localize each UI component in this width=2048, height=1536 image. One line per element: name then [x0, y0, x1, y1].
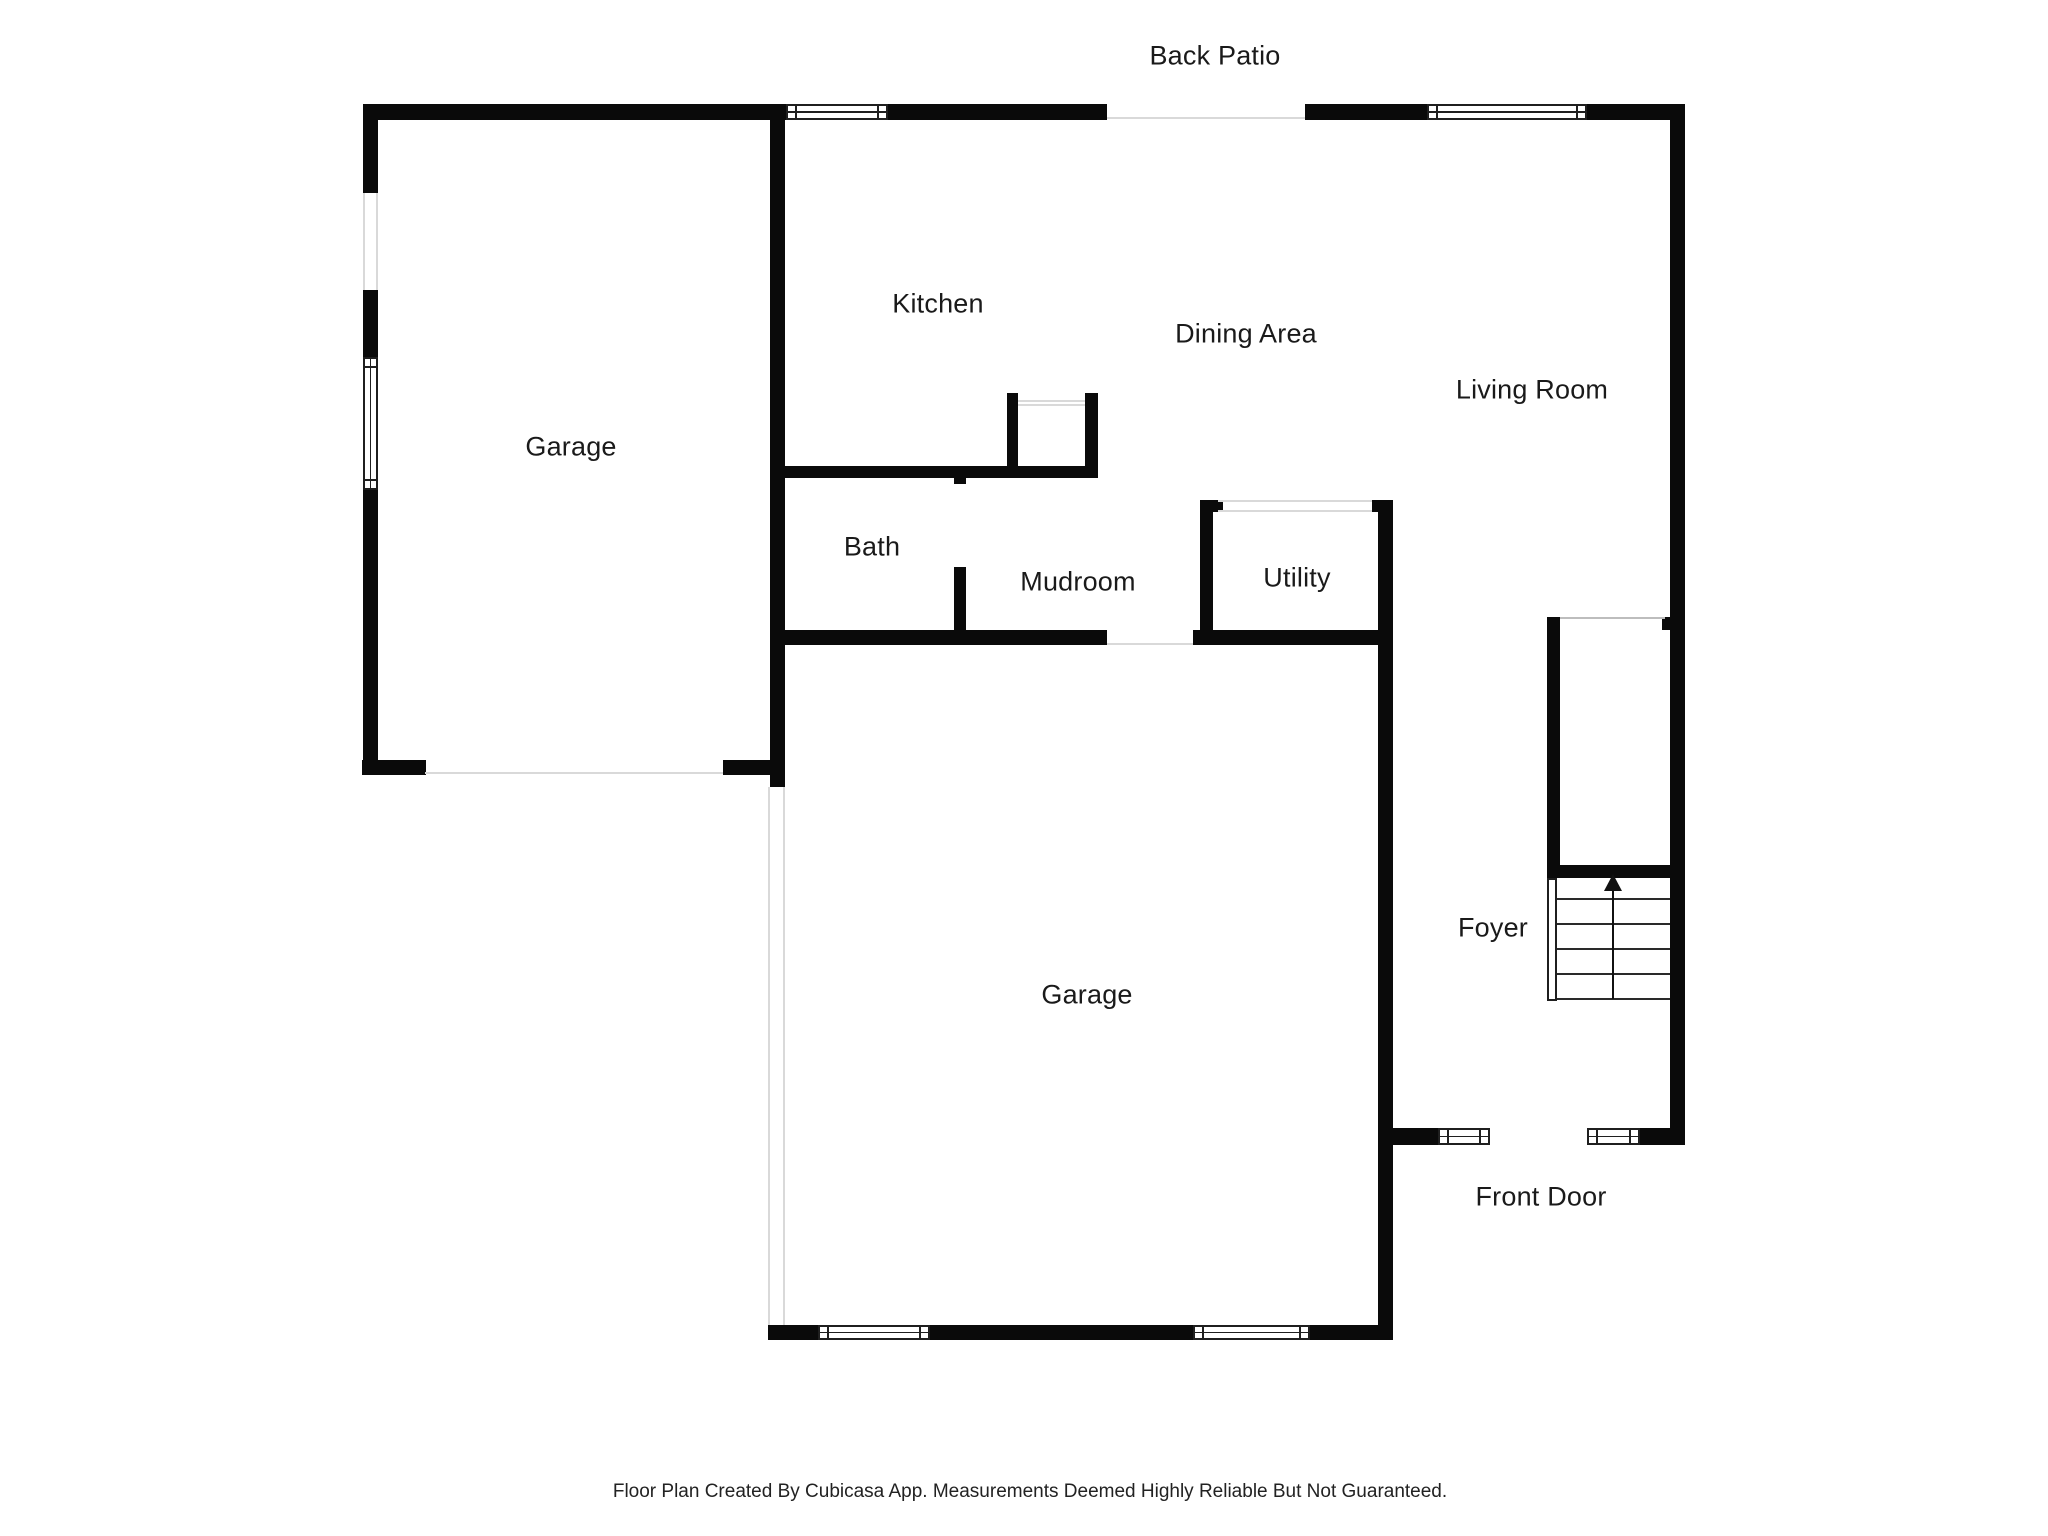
stairwell-top-line — [1560, 617, 1665, 619]
frontdoor-window-right — [1587, 1128, 1640, 1145]
wall-bath-right — [954, 567, 966, 630]
label-mudroom: Mudroom — [1020, 567, 1135, 598]
garage-door-window-right — [1193, 1325, 1310, 1340]
wall-garage1-bottom-left — [362, 760, 426, 775]
stairs-up-arrow-icon — [1604, 874, 1622, 891]
stair-railing — [1547, 878, 1557, 1001]
wall-pantry-left — [1007, 393, 1018, 468]
kitchen-window — [786, 104, 888, 120]
wall-top-garage — [363, 104, 786, 120]
wall-center-vertical — [770, 104, 785, 787]
wall-utility-left — [1200, 500, 1213, 630]
garage-side-window — [363, 357, 378, 490]
label-kitchen: Kitchen — [892, 289, 983, 320]
wall-mudroom-bottom — [770, 630, 1107, 645]
garage2-left-edge-a — [768, 787, 770, 1325]
mudroom-garage-door-line — [1107, 643, 1193, 645]
left-gap-edge-a — [363, 193, 365, 290]
label-garage-bottom: Garage — [1041, 980, 1132, 1011]
label-front-door: Front Door — [1475, 1182, 1606, 1213]
wall-garage2-right — [1378, 500, 1393, 1340]
stairs-direction-line — [1612, 890, 1614, 999]
label-bath: Bath — [844, 532, 900, 563]
wall-bath-door-stub — [954, 478, 966, 484]
back-patio-opening-line — [1107, 117, 1305, 119]
pantry-opening-line-b — [1018, 404, 1085, 406]
wall-garage2-bottom-b — [930, 1325, 1193, 1340]
garage-door-window-left — [818, 1325, 930, 1340]
label-living-room: Living Room — [1456, 375, 1608, 406]
wall-left-upper — [363, 104, 378, 193]
wall-right-exterior — [1670, 104, 1685, 1145]
garage1-opening-line — [425, 772, 723, 774]
wall-garage2-bottom-a — [768, 1325, 818, 1340]
wall-left-lower — [363, 490, 378, 775]
label-foyer: Foyer — [1458, 913, 1528, 944]
wall-stairwell-left — [1547, 617, 1560, 878]
left-gap-edge-b — [376, 193, 378, 290]
wall-top-patio-right — [1305, 104, 1427, 120]
garage2-left-edge-b — [783, 787, 785, 1325]
wall-left-middle — [363, 290, 378, 357]
wall-pantry-right — [1085, 393, 1098, 468]
wall-utility-bottom — [1193, 630, 1393, 645]
utility-opening-line-a — [1218, 500, 1372, 502]
label-utility: Utility — [1263, 563, 1330, 594]
utility-opening-line-b — [1218, 510, 1372, 512]
wall-garage2-bottom-c — [1310, 1325, 1393, 1340]
living-room-window — [1427, 104, 1587, 120]
label-back-patio: Back Patio — [1149, 41, 1280, 72]
pantry-opening-line-a — [1018, 400, 1085, 402]
frontdoor-window-left — [1438, 1128, 1490, 1145]
wall-top-kitchen-right — [888, 104, 1107, 120]
footer-disclaimer: Floor Plan Created By Cubicasa App. Meas… — [613, 1481, 1447, 1503]
floor-plan: Back Patio Garage Kitchen Dining Area Li… — [0, 0, 2048, 1536]
label-garage-top: Garage — [525, 432, 616, 463]
wall-kitchen-bottom — [770, 466, 1098, 478]
label-dining-area: Dining Area — [1175, 319, 1317, 350]
wall-frontdoor-left — [1378, 1128, 1438, 1145]
